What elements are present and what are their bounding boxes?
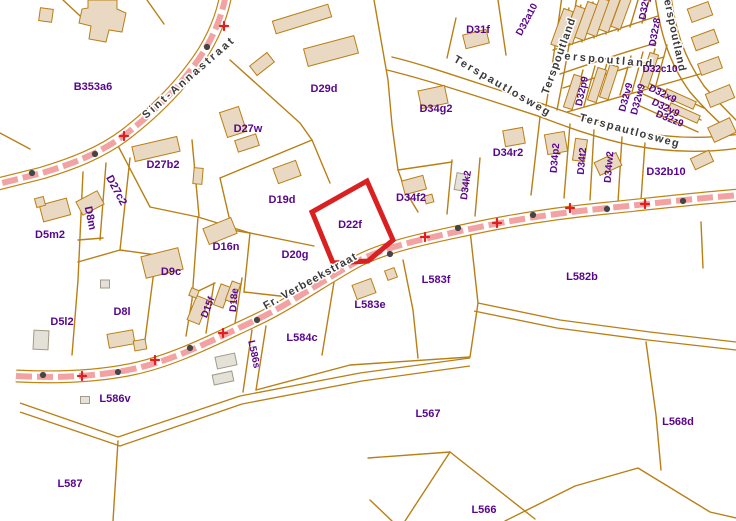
parcel-label-l586v: L586v <box>99 393 131 405</box>
parcel-label-d18e: D18e <box>228 287 241 312</box>
parcel-boundary-line <box>447 160 452 214</box>
parcel-label-l566: L566 <box>471 504 496 516</box>
parcel-boundary-line <box>192 217 198 300</box>
building <box>690 150 713 169</box>
building <box>503 127 525 146</box>
parcel-boundary-line <box>470 230 478 303</box>
shed-building <box>33 330 49 350</box>
parcel-label-l583f: L583f <box>422 274 451 286</box>
parcel-label-d8l: D8l <box>113 306 130 318</box>
road-node-dot <box>680 198 686 204</box>
parcel-boundary-line <box>78 238 103 240</box>
parcel-label-d32b10: D32b10 <box>646 166 685 178</box>
building <box>304 36 359 67</box>
cadastral-map[interactable]: Sint-AnnastraatFr. VerbeekstraatTerspaut… <box>0 0 736 521</box>
road-fr-verbeekstraat-casing <box>16 195 736 377</box>
parcel-label-d34p2: D34p2 <box>549 142 563 173</box>
building <box>687 2 712 23</box>
parcel-label-d27w: D27w <box>234 123 263 135</box>
road-node-dot <box>187 345 193 351</box>
parcel-boundary-line <box>531 117 540 195</box>
building <box>705 85 734 108</box>
road-node-dot <box>387 251 393 257</box>
parcel-boundary-line <box>505 468 736 521</box>
building <box>385 268 398 281</box>
parcel-label-d34t2: D34t2 <box>576 147 589 176</box>
road-node-dot <box>29 170 35 176</box>
parcel-label-l587: L587 <box>57 478 82 490</box>
parcel-boundary-line <box>368 452 535 519</box>
parcel-label-d31f: D31f <box>466 24 490 36</box>
parcel-boundary-line <box>0 133 30 149</box>
shed-building <box>81 397 90 404</box>
building <box>34 196 45 207</box>
parcel-boundary-line <box>147 0 164 24</box>
building <box>698 57 723 76</box>
parcel-label-d20g: D20g <box>282 249 309 261</box>
road-node-dot <box>604 206 610 212</box>
road-fr-verbeekstraat-centerline <box>16 195 736 377</box>
road-node-dot <box>40 372 46 378</box>
parcel-boundary-line <box>322 282 334 355</box>
street-name-label: Terspautlosweg <box>451 53 553 119</box>
parcel-label-d34w2: D34w2 <box>603 150 617 183</box>
parcel-boundary-line <box>250 233 314 246</box>
parcel-label-d19d: D19d <box>269 194 296 206</box>
building <box>352 279 376 300</box>
shed-building <box>215 353 237 369</box>
building <box>133 339 147 351</box>
road-node-dot <box>92 151 98 157</box>
parcel-label-l584c: L584c <box>286 332 317 344</box>
parcel-label-d22f: D22f <box>338 219 362 231</box>
parcel-boundary-line <box>447 18 456 58</box>
shed-building <box>212 371 234 385</box>
parcel-boundary-line <box>370 500 392 521</box>
parcel-boundary-line <box>641 143 645 200</box>
parcel-boundary-line <box>590 130 594 200</box>
parcel-label-l568d: L568d <box>662 416 694 428</box>
parcel-label-l582b: L582b <box>566 271 598 283</box>
parcel-boundary-line <box>403 260 418 358</box>
road-node-dot <box>115 369 121 375</box>
parcel-label-b353a6: B353a6 <box>74 81 113 93</box>
track-path <box>474 311 736 350</box>
building <box>250 52 275 75</box>
building <box>39 8 54 23</box>
parcel-label-d29d: D29d <box>311 83 338 95</box>
street-name-label: Fr. Verbeekstraat <box>261 251 359 313</box>
parcel-boundary-line <box>244 233 250 292</box>
road-fr-verbeekstraat-surface <box>16 195 736 377</box>
parcel-boundary-line <box>498 0 506 55</box>
parcel-label-l586s: L586s <box>245 339 262 369</box>
parcel-label-d32a10: D32a10 <box>514 1 540 37</box>
parcel-label-d8m: D8m <box>82 205 99 231</box>
building <box>235 134 260 152</box>
road-node-dot <box>530 212 536 218</box>
cadastral-map-canvas: Sint-AnnastraatFr. VerbeekstraatTerspaut… <box>0 0 736 521</box>
parcel-boundary-line <box>646 342 661 470</box>
shed-building <box>101 280 110 288</box>
parcel-label-d32z8: D32z8 <box>648 17 664 48</box>
parcel-label-d34f2: D34f2 <box>396 192 426 204</box>
street-name-label: Sint-Annastraat <box>140 34 238 121</box>
parcel-boundary-line <box>475 158 480 216</box>
parcel-label-d5m2: D5m2 <box>35 229 65 241</box>
parcel-label-d5l2: D5l2 <box>50 316 73 328</box>
road-node-dot <box>254 317 260 323</box>
parcel-label-d27b2: D27b2 <box>146 159 179 171</box>
parcel-label-d32c10: D32c10 <box>642 64 677 75</box>
parcel-label-l583e: L583e <box>354 299 385 311</box>
track-path <box>478 303 736 342</box>
building <box>691 29 718 50</box>
parcel-boundary-line <box>230 60 330 183</box>
parcel-label-l567: L567 <box>415 408 440 420</box>
road-node-dot <box>204 44 210 50</box>
parcel-boundary-line <box>701 222 703 268</box>
building <box>272 4 331 33</box>
building <box>79 0 126 42</box>
building <box>193 168 203 185</box>
road-node-dot <box>455 225 461 231</box>
parcel-label-d27c2: D27c2 <box>103 173 129 207</box>
parcel-label-d16n: D16n <box>213 241 240 253</box>
building <box>132 137 180 162</box>
building <box>708 118 736 143</box>
parcel-label-d34g2: D34g2 <box>419 103 452 115</box>
parcel-label-d34r2: D34r2 <box>493 147 524 159</box>
parcel-label-d9c: D9c <box>161 266 181 278</box>
building <box>107 330 135 348</box>
building <box>273 160 301 183</box>
parcel-boundary-line <box>398 162 452 170</box>
parcel-boundary-line <box>618 137 622 202</box>
parcel-boundary-line <box>405 452 450 521</box>
parcel-boundary-line <box>113 441 118 521</box>
